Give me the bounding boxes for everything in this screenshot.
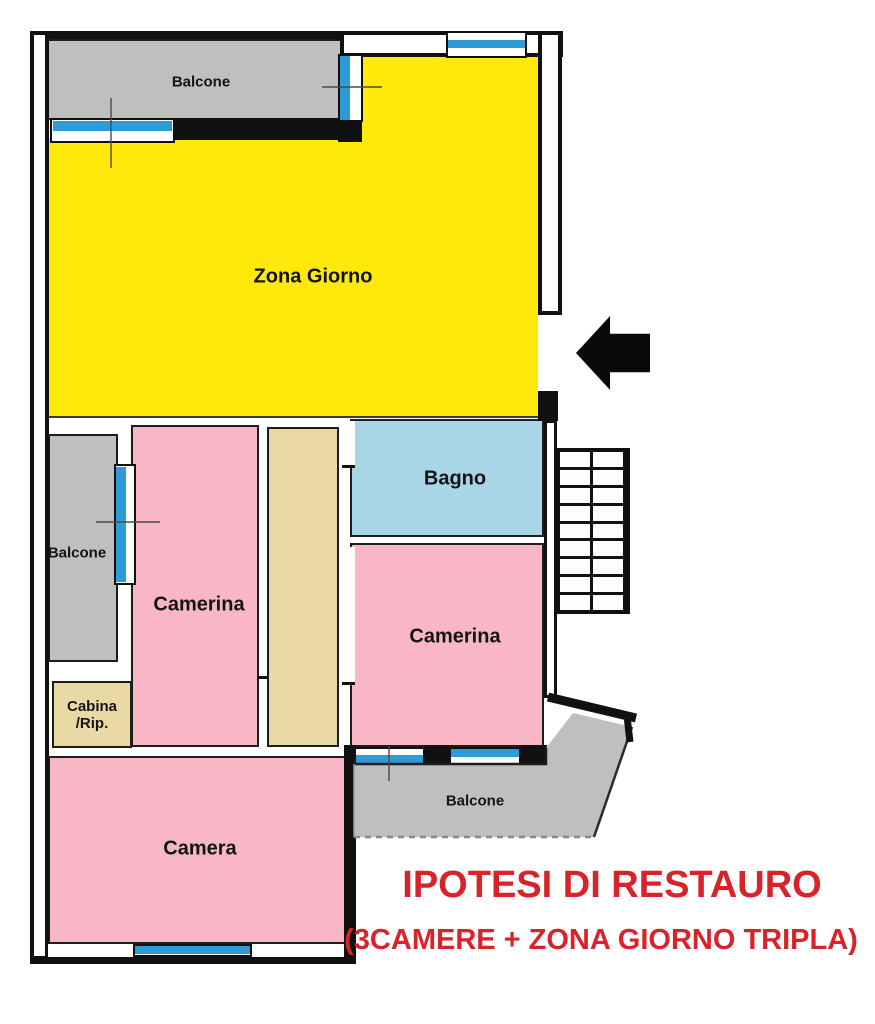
room-zona-giorno-upper [360, 56, 538, 142]
label-camerina-right: Camerina [409, 626, 500, 649]
wall-pier-bottom-1 [425, 745, 451, 765]
window-top-wall-glass [448, 40, 525, 48]
wall-right-below-door [538, 391, 558, 421]
annotation-subtitle: (3CAMERE + ZONA GIORNO TRIPLA) [344, 924, 858, 957]
floor-plan-canvas: Balcone Zona Giorno Bagno Balcone Cameri… [0, 0, 875, 1024]
label-zona-giorno: Zona Giorno [254, 266, 373, 289]
label-cabina-rip: Cabina /Rip. [67, 698, 117, 733]
label-balcone-top: Balcone [172, 73, 230, 90]
wall-top-left [30, 31, 345, 39]
room-camerina-left [131, 425, 259, 747]
door-camerina-left-jamb [257, 676, 269, 679]
window-top-vertical-glass [340, 56, 350, 120]
wall-bottom [30, 956, 356, 964]
label-balcone-left: Balcone [48, 544, 106, 561]
door-camerina-right-jamb [342, 682, 355, 685]
label-cabina-line2: /Rip. [67, 715, 117, 732]
window-balcony-top-glass [53, 121, 172, 131]
wall-left [30, 31, 49, 963]
label-camerina-left: Camerina [153, 594, 244, 617]
door-bagno-jamb [342, 465, 355, 468]
label-cabina-line1: Cabina [67, 698, 117, 715]
door-camerina-right [342, 547, 355, 683]
label-balcone-bottom: Balcone [446, 792, 504, 809]
wall-balcony-divider-top [172, 118, 344, 140]
window-camera-bottom-glass [135, 946, 250, 954]
label-bagno: Bagno [424, 468, 486, 491]
annotation-title: IPOTESI DI RESTAURO [402, 864, 821, 907]
corridor [267, 427, 339, 747]
window-balcony-bottom-right-glass [451, 749, 519, 757]
wall-right-upper [538, 31, 562, 315]
entrance-arrow-icon [576, 316, 650, 390]
wall-elbow-top-window [338, 120, 362, 142]
wall-pier-bottom-2 [521, 745, 547, 765]
window-balcony-bottom-left-glass [356, 755, 423, 763]
window-balcony-left-glass [116, 467, 126, 582]
label-camera: Camera [163, 838, 236, 861]
stairs [556, 448, 630, 614]
door-bagno [342, 421, 355, 466]
